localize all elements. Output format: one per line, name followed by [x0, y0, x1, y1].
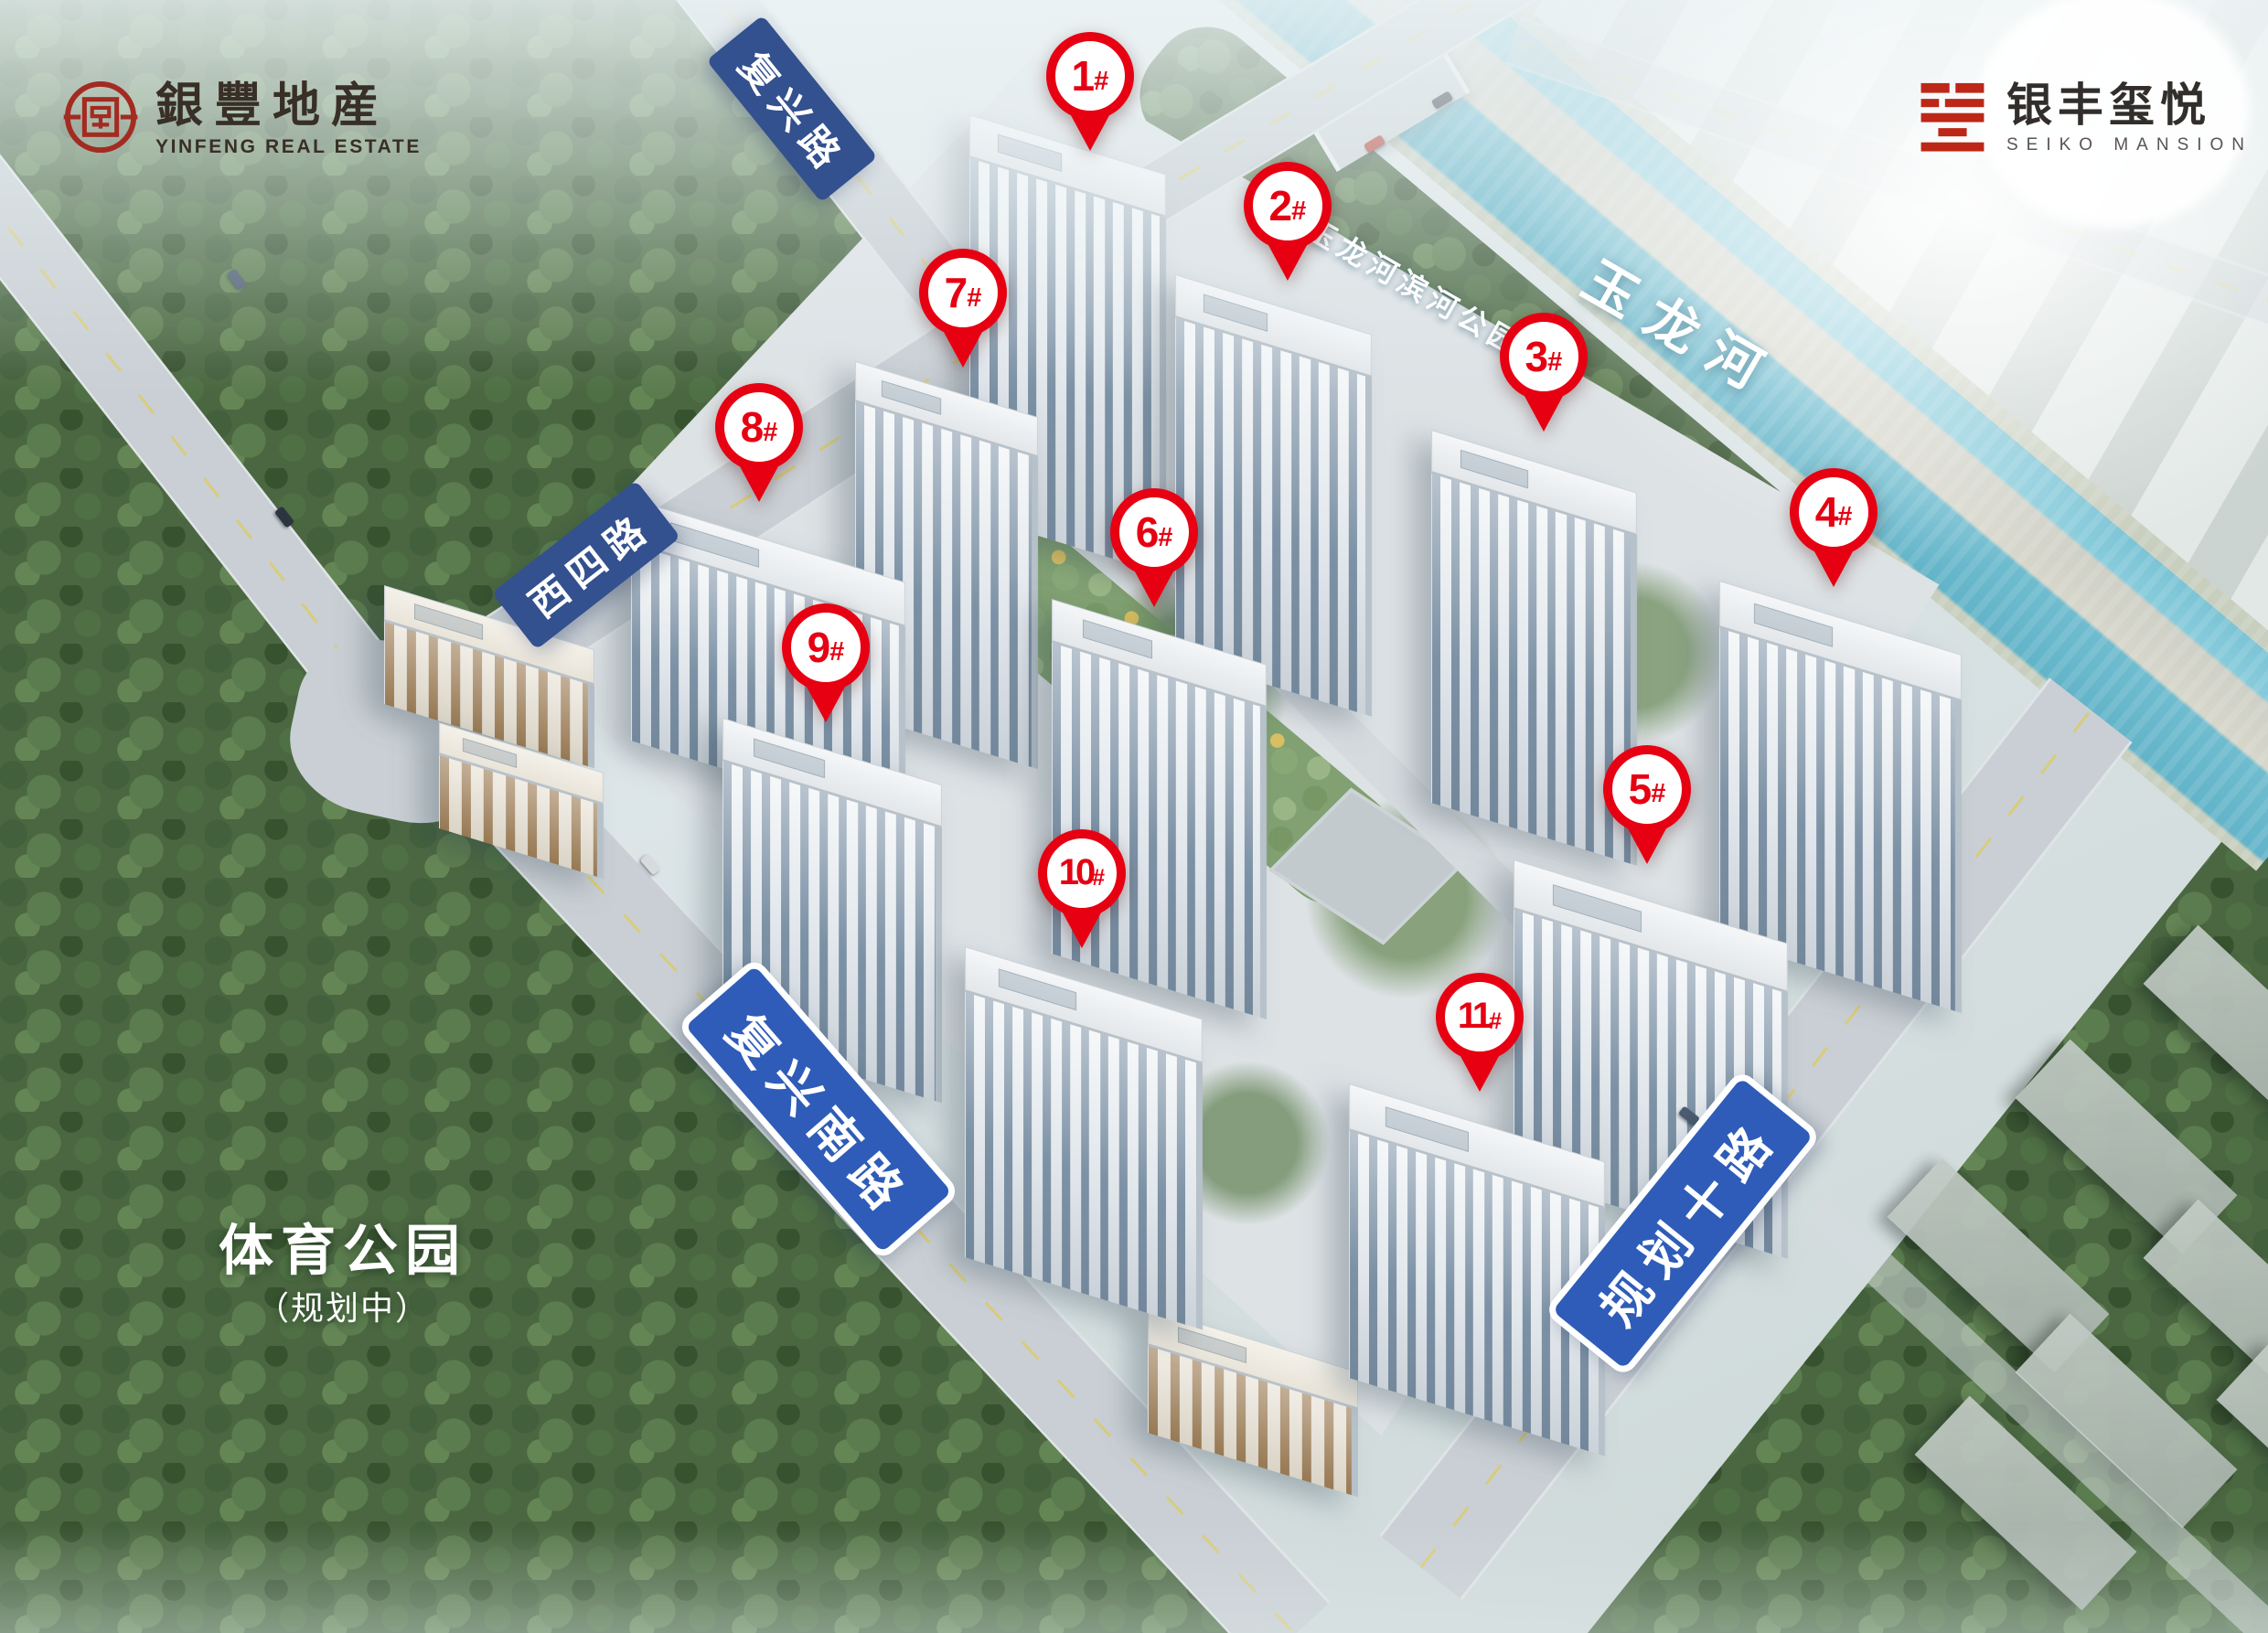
building-marker-9[interactable]: 9# [782, 603, 870, 691]
marker-number: 11 [1458, 996, 1489, 1037]
marker-hash: # [1489, 1009, 1502, 1035]
building-marker-1[interactable]: 1# [1046, 32, 1134, 120]
marker-circle: 3# [1500, 313, 1588, 400]
marker-circle: 6# [1110, 488, 1198, 576]
project-logo: 银丰玺悦 SEIKO MANSION [1915, 79, 2252, 158]
building-marker-5[interactable]: 5# [1603, 745, 1691, 833]
marker-hash: # [1158, 523, 1172, 553]
marker-circle: 10# [1038, 829, 1126, 917]
project-name-cn: 银丰玺悦 [2006, 81, 2252, 130]
marker-circle: 1# [1046, 32, 1134, 120]
marker-number: 5 [1629, 764, 1652, 814]
building-marker-7[interactable]: 7# [919, 249, 1007, 336]
marker-number: 4 [1815, 487, 1838, 537]
developer-name-cn: 銀豐地産 [155, 80, 422, 132]
building-marker-4[interactable]: 4# [1790, 468, 1878, 556]
marker-number: 8 [741, 402, 764, 452]
developer-logo: 銀豐地産 YINFENG REAL ESTATE [62, 79, 422, 160]
marker-hash: # [1094, 67, 1108, 97]
marker-number: 7 [945, 268, 968, 317]
marker-hash: # [829, 637, 844, 667]
marker-hash: # [1547, 347, 1562, 378]
building-marker-6[interactable]: 6# [1110, 488, 1198, 576]
yinfeng-round-seal-icon [62, 79, 139, 160]
marker-circle: 11# [1436, 973, 1524, 1061]
marker-hash: # [1291, 197, 1306, 227]
marker-number: 2 [1269, 181, 1292, 230]
building-marker-10[interactable]: 10# [1038, 829, 1126, 917]
marker-number: 9 [808, 623, 830, 672]
marker-number: 6 [1136, 507, 1159, 557]
masterplan-rendering: 复兴路西四路复兴南路规划十路玉龙河玉龙河滨河公园体育公园（规划中） 1#2#3#… [0, 0, 2268, 1633]
place-label: （规划中） [256, 1282, 430, 1329]
project-name-en: SEIKO MANSION [2006, 135, 2252, 155]
marker-hash: # [1837, 502, 1852, 532]
marker-circle: 8# [715, 383, 803, 471]
marker-circle: 9# [782, 603, 870, 691]
building-marker-3[interactable]: 3# [1500, 313, 1588, 400]
residential-tower [1052, 599, 1267, 1019]
building-marker-2[interactable]: 2# [1244, 162, 1332, 250]
marker-hash: # [1092, 865, 1105, 891]
marker-number: 1 [1072, 51, 1095, 101]
place-label: 体育公园 [219, 1207, 467, 1286]
developer-name-en: YINFENG REAL ESTATE [155, 136, 422, 158]
marker-circle: 5# [1603, 745, 1691, 833]
marker-hash: # [1651, 779, 1665, 809]
marker-circle: 4# [1790, 468, 1878, 556]
marker-hash: # [763, 418, 777, 448]
marker-circle: 7# [919, 249, 1007, 336]
marker-number: 3 [1525, 332, 1548, 381]
xi-square-seal-icon [1915, 79, 1990, 158]
building-marker-8[interactable]: 8# [715, 383, 803, 471]
building-marker-11[interactable]: 11# [1436, 973, 1524, 1061]
marker-number: 10 [1059, 852, 1093, 893]
marker-circle: 2# [1244, 162, 1332, 250]
marker-hash: # [967, 283, 981, 314]
